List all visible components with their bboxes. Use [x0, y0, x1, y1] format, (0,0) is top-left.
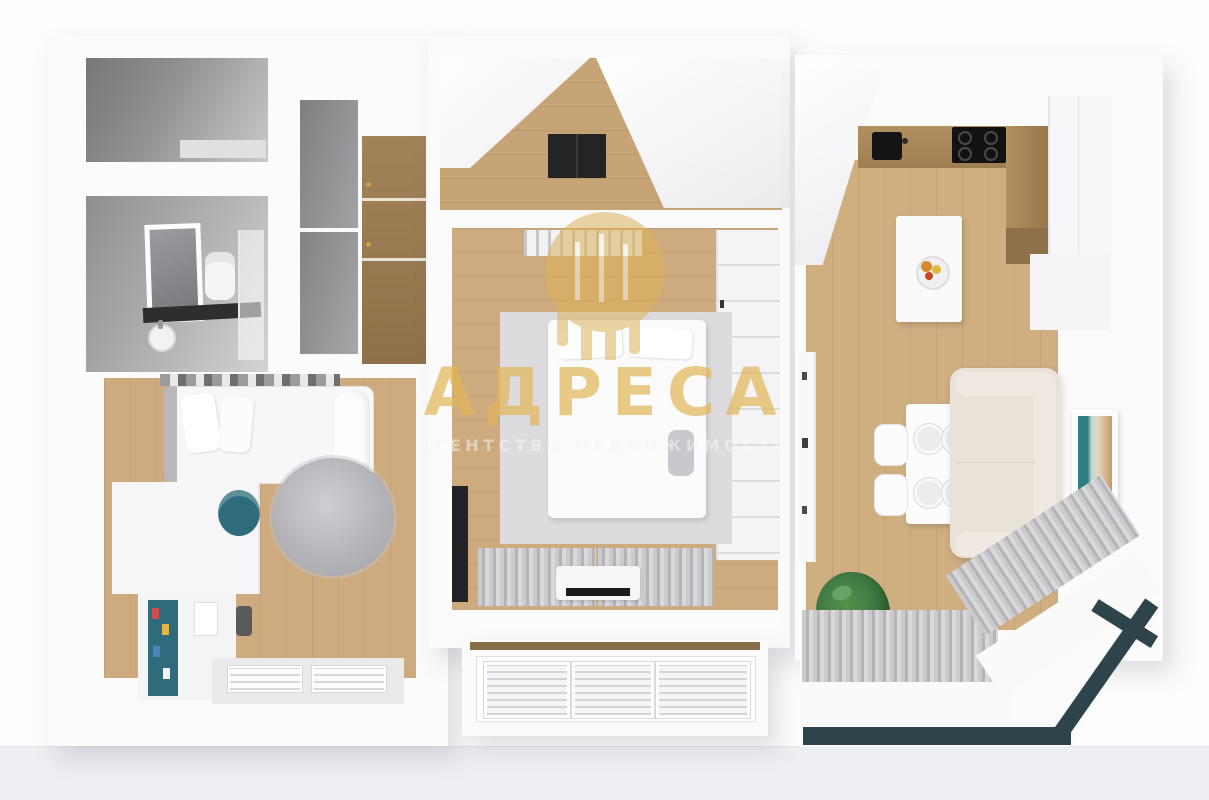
- corner-cabinet-white: [1030, 254, 1110, 330]
- book-red: [152, 608, 159, 619]
- dresser-tv: [566, 588, 630, 596]
- console-decor-1: [802, 372, 807, 380]
- fruit-orange: [921, 261, 932, 272]
- closet-panel-upper: [300, 100, 358, 228]
- shower-glass: [238, 230, 264, 360]
- book-yellow: [162, 624, 169, 635]
- balcony-frame-bottom: [803, 727, 1071, 745]
- backdrop-floor-band: [0, 746, 1209, 800]
- burner-3: [958, 147, 972, 161]
- wardrobe-handle-2: [366, 242, 371, 247]
- media-console: [797, 352, 816, 562]
- book-blue: [153, 646, 160, 657]
- dining-chair-1: [874, 424, 908, 466]
- plate-1: [914, 424, 944, 454]
- closet-panel-lower: [300, 232, 358, 354]
- loggia-pane-3: [656, 662, 750, 718]
- wardrobe-divider-2: [362, 258, 426, 261]
- kids-window-pane-2: [312, 666, 386, 692]
- toilet-shelf: [180, 140, 266, 158]
- loggia-pane-2: [572, 662, 654, 718]
- kids-window-pane-1: [228, 666, 302, 692]
- bay-curtain-horizontal: [802, 610, 998, 682]
- kids-stool: [236, 606, 252, 636]
- kids-shelf-band: [160, 374, 340, 386]
- bay-wall-horizontal: [800, 682, 1012, 728]
- bed-pillow-left: [557, 326, 622, 359]
- bed-throw-pillow: [668, 430, 694, 476]
- loggia-sill-wood: [470, 642, 760, 650]
- kitchen-counter-right: [1006, 126, 1048, 228]
- toilet-fixture: [205, 252, 235, 300]
- doormat-divider: [576, 134, 578, 178]
- book-white: [163, 668, 170, 679]
- bed-pillow-right: [627, 326, 692, 359]
- burner-2: [984, 131, 998, 145]
- burner-1: [958, 131, 972, 145]
- sofa-seat-line: [956, 462, 1036, 463]
- kids-laptop: [194, 602, 218, 636]
- kids-bed-headboard: [164, 386, 177, 482]
- loggia-pane-1: [484, 662, 570, 718]
- plate-3: [914, 478, 944, 508]
- wardrobe-divider-1: [362, 198, 426, 201]
- fruit-red: [925, 272, 933, 280]
- console-decor-3: [802, 506, 807, 514]
- fruit-yellow: [932, 265, 941, 274]
- wardrobe-wood: [362, 136, 426, 364]
- burner-4: [984, 147, 998, 161]
- wardrobe-handle-3: [720, 300, 724, 308]
- dining-chair-2: [874, 474, 908, 516]
- kitchen-faucet: [902, 138, 908, 144]
- wardrobe-handle-1: [366, 182, 371, 187]
- kitchen-sink: [872, 132, 902, 160]
- console-decor-2: [802, 438, 808, 448]
- bedroom-canopy-shelf: [524, 230, 642, 256]
- kids-teal-side-table: [218, 490, 260, 536]
- kids-round-rug: [272, 458, 394, 576]
- sink-faucet: [158, 320, 163, 329]
- floor-plan-render: АДРЕСА АГЕНТСТВО НЕДВИЖИМОСТИ: [0, 0, 1209, 800]
- bedroom-wall-tv: [452, 486, 468, 602]
- kids-pillow-2: [218, 395, 255, 454]
